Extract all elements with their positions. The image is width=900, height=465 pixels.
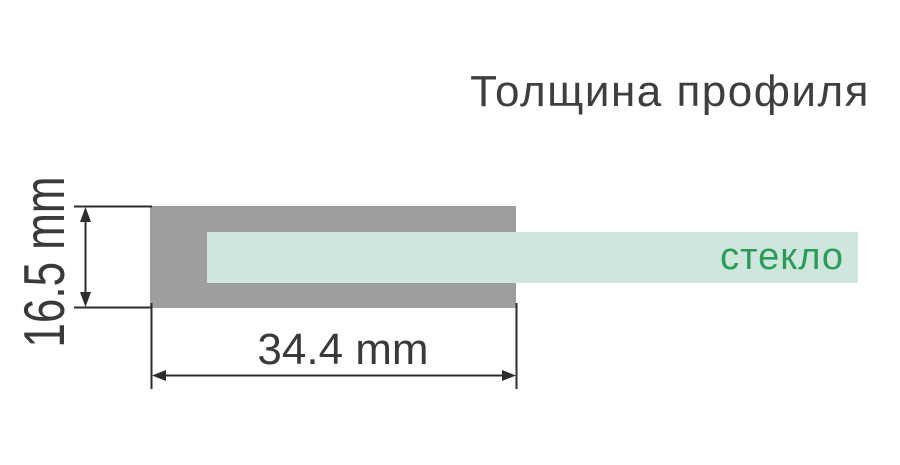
dimension-lines <box>0 0 900 465</box>
height-dimension-label: 16.5 mm <box>7 142 85 382</box>
arrow-left-icon <box>152 370 166 381</box>
height-dimension <box>74 207 152 308</box>
arrow-right-icon <box>502 370 516 381</box>
profile-thickness-diagram: Толщина профиля стекло 16.5 mm 34.4 mm <box>0 0 900 465</box>
width-dimension-label: 34.4 mm <box>193 328 493 372</box>
